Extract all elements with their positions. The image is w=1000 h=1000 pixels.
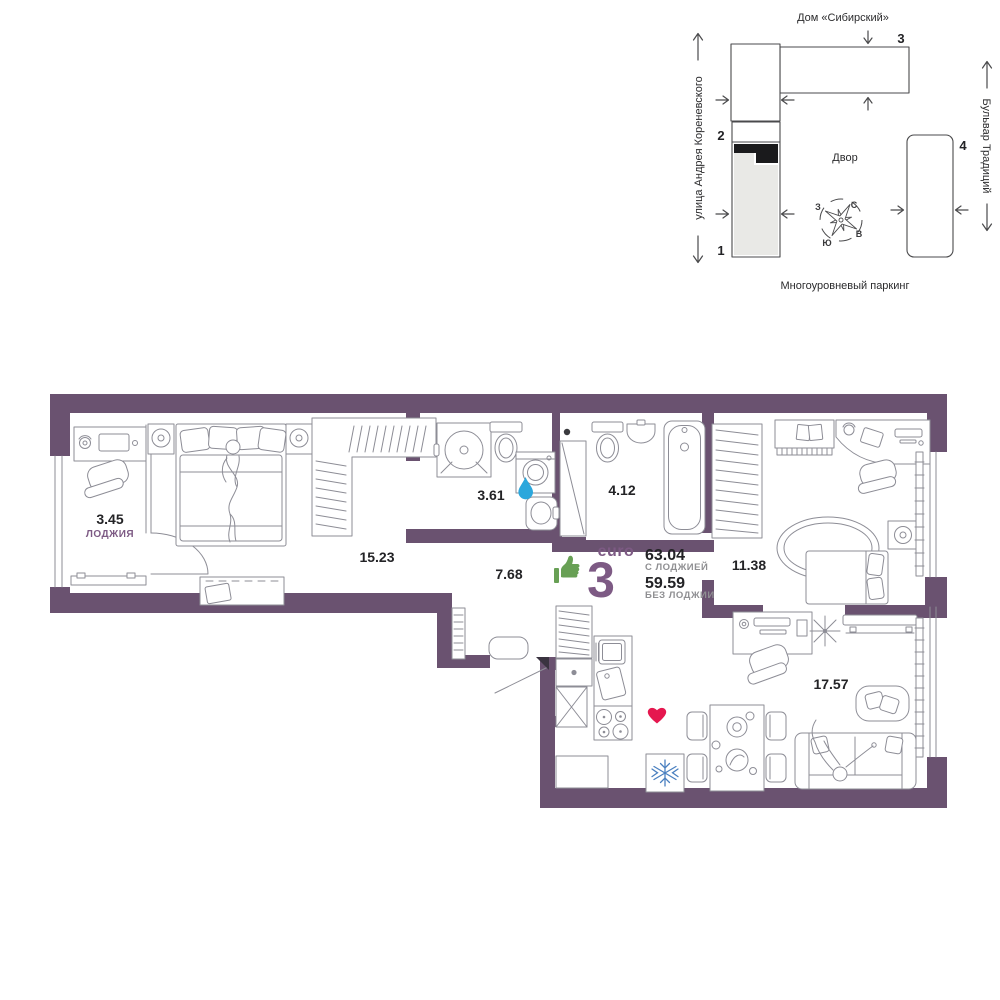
area-with-loggia-caption: С ЛОДЖИЕЙ (645, 561, 708, 573)
tv (843, 615, 917, 633)
shower (434, 423, 491, 477)
wardrobe (712, 424, 762, 538)
piano (775, 420, 834, 455)
room-name-label: ЛОДЖИЯ (86, 529, 134, 540)
courtyard-label: Двор (832, 152, 857, 164)
radiator (915, 618, 924, 757)
radiator (915, 452, 924, 576)
building-body (734, 153, 778, 255)
toilet (592, 422, 623, 462)
shoe-rack (452, 608, 465, 659)
heart-icon (648, 708, 666, 724)
apartment-summary: euro 3 63.04 С ЛОДЖИЕЙ 59.59 БЕЗ ЛОДЖИИ (587, 543, 715, 608)
bathtub (664, 421, 705, 534)
site-title: Дом «Сибирский» (797, 12, 889, 24)
floorplan-page: Дом «Сибирский» 3 2 1 4 Двор Многоуровне… (0, 0, 1000, 1000)
coffee-table (856, 686, 909, 721)
wardrobe (312, 418, 436, 536)
compass-south: Ю (822, 238, 831, 248)
thumbs-up-icon (554, 556, 579, 583)
entrance-door (556, 687, 587, 727)
interior-door (560, 441, 586, 536)
room-bedroom-2 (712, 420, 930, 604)
loggia-desk (74, 427, 146, 461)
sink (627, 420, 655, 443)
floorplan-svg: Дом «Сибирский» 3 2 1 4 Двор Многоуровне… (0, 0, 1000, 1000)
room-bathroom (560, 420, 705, 536)
loggia-chair (83, 457, 130, 499)
room-area-label: 3.61 (477, 487, 504, 503)
area-without-loggia-caption: БЕЗ ЛОДЖИИ (645, 590, 715, 601)
parking-label: Многоуровневый паркинг (781, 280, 910, 292)
room-shower (434, 422, 559, 530)
window (55, 456, 62, 587)
building-number: 3 (897, 31, 904, 46)
room-kitchen-living (556, 612, 924, 792)
hall-closet (556, 606, 592, 686)
dresser (200, 577, 284, 605)
window (930, 452, 936, 577)
compass-north: С (851, 200, 858, 210)
street-left-label: улица Андрея Кореневского (693, 76, 705, 220)
building-number: 4 (959, 138, 967, 153)
building-tower-highlighted (732, 142, 780, 257)
sofa (795, 733, 916, 789)
room-area-label: 15.23 (359, 549, 394, 565)
nightstand (148, 424, 174, 454)
nightstand (888, 521, 919, 549)
street-right-label: Бульвар Традиций (980, 99, 992, 194)
compass-west: З (815, 202, 821, 212)
room-area-label: 17.57 (813, 676, 848, 692)
office-chair (857, 458, 898, 494)
building-l-shape (731, 44, 909, 142)
window (930, 607, 936, 757)
building-number: 2 (717, 128, 724, 143)
room-bedroom (148, 418, 436, 605)
door-stop (564, 429, 570, 435)
apartment-rooms-count: 3 (587, 552, 615, 608)
compass-east: В (856, 229, 863, 239)
plant (810, 616, 840, 646)
room-area-label: 3.45 (96, 511, 123, 527)
site-plan: Дом «Сибирский» 3 2 1 4 Двор Многоуровне… (693, 12, 992, 292)
sink (526, 497, 559, 530)
nightstand (286, 424, 312, 454)
room-area-label: 11.38 (732, 557, 766, 573)
building-4 (907, 135, 953, 257)
single-bed (806, 551, 888, 604)
pouf (489, 637, 528, 659)
compass-rose: С В Ю З (815, 195, 865, 248)
building-number: 1 (717, 243, 724, 258)
refrigerator (646, 754, 684, 792)
dining-table (687, 705, 786, 791)
room-area-label: 4.12 (608, 482, 635, 498)
room-area-label: 7.68 (495, 566, 522, 582)
